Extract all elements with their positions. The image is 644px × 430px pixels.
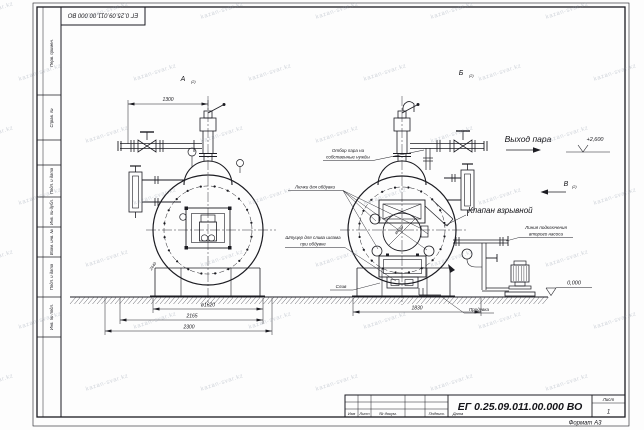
strip-label-podp-data-2: Подп. и дата: [49, 263, 54, 290]
blowdown-pipe: [419, 288, 441, 295]
label-blowdown: Продувка: [469, 307, 489, 312]
strip-label-vzam-inv: Взам. инв. №: [49, 229, 54, 255]
label-second-pump-2: второго насоса: [529, 232, 563, 237]
pump-pressure-gauge: [462, 249, 472, 259]
ground-hatching: [70, 297, 549, 304]
view-b-ref: (2): [469, 74, 474, 78]
label-own-needs-1: Отбор пара на: [332, 148, 365, 153]
explosion-valve-hatch: [379, 200, 453, 226]
dim-2165: 2165: [185, 314, 197, 320]
annotations: А (2) Б (2) Выход пара +2,600 В (2) Клап…: [180, 70, 610, 313]
pump-motor-hatch: [514, 266, 527, 281]
weld-mark: [448, 264, 455, 273]
dim-1300: 1300: [162, 97, 173, 103]
strip-label-podp-data-1: Подп. и дата: [49, 167, 54, 194]
arrow-v-label: В: [564, 181, 569, 188]
sheet-frame: Перв. примен. Справ. № Подп. и дата Инв.…: [33, 3, 629, 426]
drawing-sheet: Перв. примен. Справ. № Подп. и дата Инв.…: [0, 0, 644, 430]
blueprint-canvas: Перв. примен. Справ. № Подп. и дата Инв.…: [0, 0, 644, 430]
dim-2440: 2440: [148, 260, 158, 272]
tb-sheet-label: Лист: [602, 397, 615, 402]
view-a-label: А: [180, 76, 186, 83]
dim-450: ø450: [394, 224, 405, 235]
label-sludge-2: при обдувке: [300, 242, 326, 247]
pedestal-a: [150, 268, 265, 296]
level-flag-ground: [546, 288, 556, 296]
dim-2300: 2300: [182, 325, 194, 331]
feed-pump: [505, 261, 535, 296]
tb-col-list: Лист: [358, 411, 370, 416]
dim-1620: ø1620: [201, 303, 215, 309]
level-flag-top: [578, 145, 588, 152]
tb-designation: ЕГ 0.25.09.011.00.000 ВО: [458, 401, 583, 413]
label-steam-outlet: Выход пара: [505, 134, 552, 144]
view-v-arrow: [541, 189, 549, 194]
lifting-eye: [237, 160, 244, 167]
label-blow-hatches: Лючки для обдувки: [294, 185, 335, 190]
bottom-hatch: [379, 254, 426, 289]
dim-1830: 1830: [411, 306, 422, 312]
level-top: +2,600: [587, 137, 605, 143]
view-a-boiler-front: 2440: [118, 96, 276, 305]
title-block: Изм Лист № докум. Подпись Дата ЕГ 0.25.0…: [345, 395, 625, 427]
label-sludge-1: Штуцер для слива шлама: [285, 235, 341, 240]
strip-label-inv-dubl: Инв. № дубл.: [49, 199, 54, 225]
view-a-ref: (2): [191, 80, 196, 84]
tb-sheet-value: 1: [607, 410, 610, 416]
view-b-boiler-rear: ø450: [340, 96, 487, 305]
label-explosion-valve: Клапан взрывной: [468, 206, 533, 215]
arrow-v-ref: (2): [572, 185, 577, 189]
tb-col-podpis: Подпись: [429, 411, 445, 416]
view-b-label: Б: [459, 70, 464, 77]
pump-piping: [453, 236, 535, 296]
strip-label-inv-podl: Инв. № подл.: [49, 304, 54, 330]
label-own-needs-2: собственные нужды: [326, 155, 370, 160]
strip-label-sprav: Справ. №: [49, 108, 54, 127]
tb-col-dokum: № докум.: [379, 411, 397, 416]
tb-format: Формат А3: [569, 421, 602, 427]
steam-direction-arrow: [533, 147, 541, 152]
ground-line: [70, 297, 549, 304]
label-drain: Слив: [336, 284, 347, 289]
label-second-pump-1: Линия подключения: [524, 225, 567, 230]
tb-col-izm: Изм: [348, 411, 356, 416]
pressure-gauge-a: [188, 148, 196, 156]
safety-valve-a: [199, 103, 226, 157]
designation-top-rotated: ЕГ 0.25.09.011.00.000 ВО: [67, 12, 138, 18]
blow-hatch-3: [424, 246, 434, 256]
level-ground: 0,000: [567, 281, 582, 287]
strip-label-perv-primen: Перв. примен.: [49, 39, 54, 67]
